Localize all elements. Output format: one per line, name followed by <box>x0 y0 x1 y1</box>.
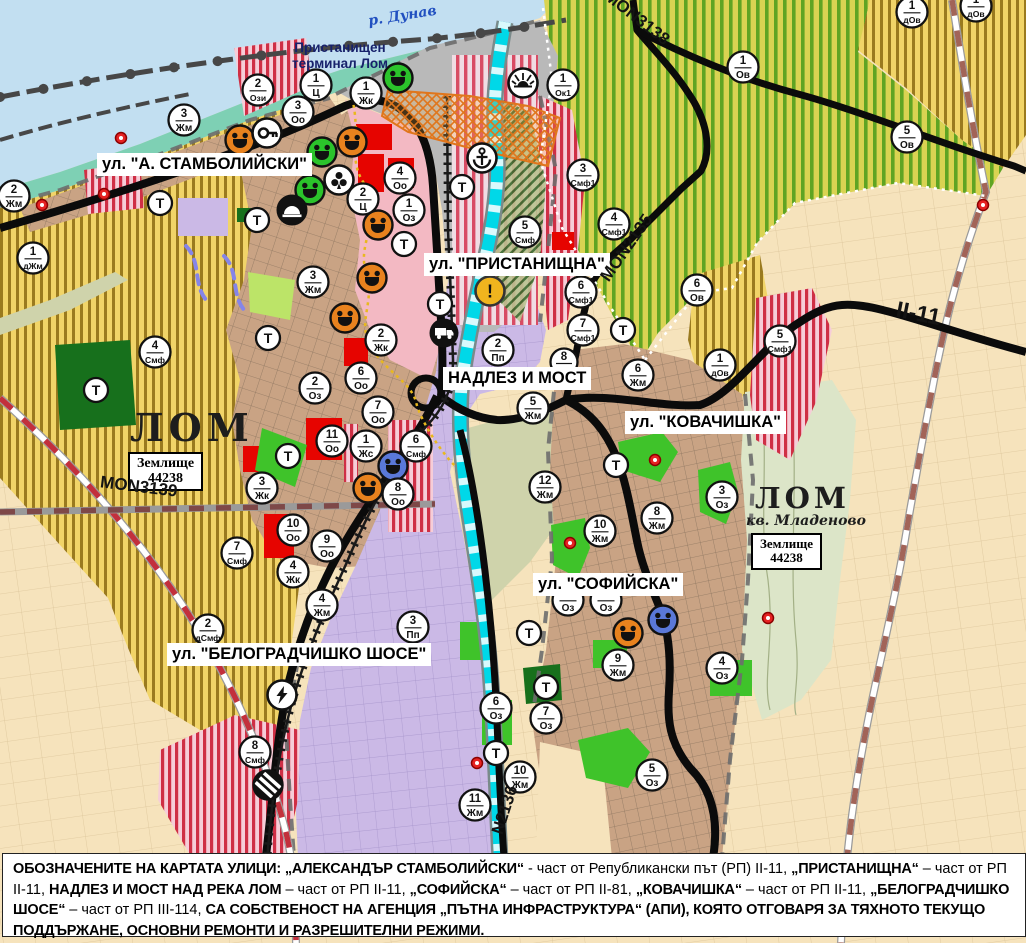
street-label-nadlez: НАДЛЕЗ И МОСТ <box>443 367 591 390</box>
street-label-belogradchishko: ул. "БЕЛОГРАДЧИШКО ШОСЕ" <box>167 643 431 666</box>
port-terminal-label: Пристанищен терминал Лом <box>277 40 403 71</box>
street-label-pristanishtna: ул. "ПРИСТАНИЩНА" <box>424 253 610 276</box>
street-label-stamboliyski: ул. "А. СТАМБОЛИЙСКИ" <box>97 153 312 176</box>
road-label-mon3138: MON3138 <box>600 0 673 50</box>
road-label-mon2135: MON2135 <box>596 211 657 286</box>
map-canvas: ! 2 Ози 1 Ц 1 Жк 3 Оо 3 Жм 2 Ж <box>0 0 1026 943</box>
danube-label: р. Дунав <box>367 3 437 30</box>
lom-mladenovo-label: ЛОМ <box>755 481 850 515</box>
street-label-sofiyska: ул. "СОФИЙСКА" <box>533 573 683 596</box>
label-overlay: р. Дунав Пристанищен терминал Лом ул. "А… <box>0 0 1026 943</box>
kvartal-label: кв. Младеново <box>746 513 866 529</box>
road-label-ii11: II-11 <box>894 296 943 331</box>
map-caption: ОБОЗНАЧЕНИТЕ НА КАРТАТА УЛИЦИ: „АЛЕКСАНД… <box>2 853 1026 937</box>
street-label-kovachishka: ул. "КОВАЧИШКА" <box>625 411 786 434</box>
zemlishte-box-2: Землище 44238 <box>751 533 822 570</box>
lom-city-label: ЛОМ <box>130 405 254 450</box>
road-label-mon2136: N2136 <box>488 783 523 837</box>
